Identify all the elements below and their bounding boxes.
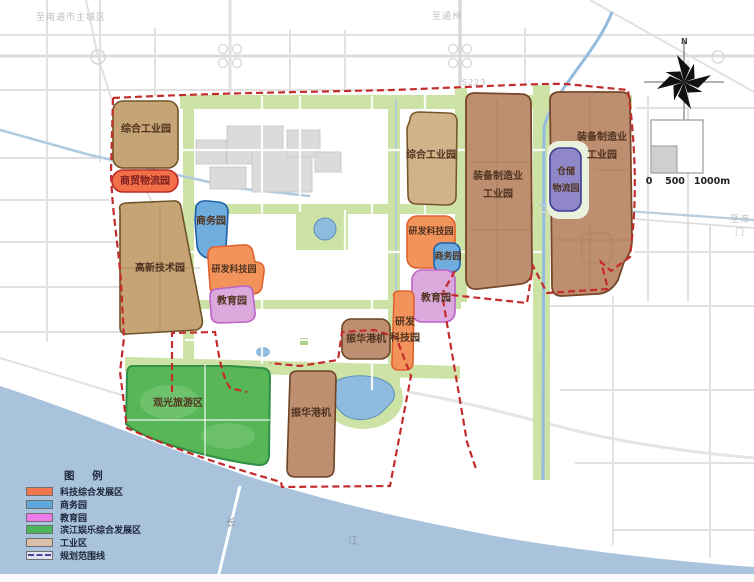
legend-row: 工业区: [26, 538, 196, 548]
zone-shape-zhenhua-port-north: [342, 319, 390, 359]
legend-label: 工业区: [60, 536, 87, 549]
zone-shape-warehouse-logistics-park: [550, 148, 581, 211]
planning-map: 至南通市主城区 至通州 S223 至海门 长 江 N 0 500 1000m 综…: [0, 0, 754, 582]
legend-row: 教育园: [26, 512, 196, 522]
legend-label: 滨江娱乐综合发展区: [60, 523, 141, 536]
zone-shape-zhenhua-port-south: [287, 371, 336, 477]
legend-title: 图 例: [64, 468, 196, 483]
legend-row: 滨江娱乐综合发展区: [26, 525, 196, 535]
legend-row: 科技综合发展区: [26, 487, 196, 497]
zone-shape-comprehensive-industrial-nw: [113, 101, 178, 168]
legend-swatch-recreation: [26, 525, 53, 534]
boundary-dash-icon: [28, 554, 51, 556]
zone-shape-equipment-manufacturing-west: [466, 93, 532, 289]
zone-shape-rd-science-park-south: [392, 291, 414, 370]
scale-bar: [651, 120, 703, 173]
legend-row: 规划范围线: [26, 550, 196, 560]
zone-shape-comprehensive-industrial-mid: [407, 112, 457, 205]
central-lake: [314, 218, 336, 240]
zone-shape-business-park-east: [434, 243, 460, 272]
legend-label: 规划范围线: [60, 549, 105, 562]
legend-swatch-education: [26, 513, 53, 522]
zone-shape-trade-logistics-park: [112, 170, 178, 192]
legend-label: 科技综合发展区: [60, 485, 123, 498]
legend-swatch-industrial: [26, 538, 53, 547]
legend-swatch-business: [26, 500, 53, 509]
zone-shape-education-park-west: [210, 286, 255, 323]
zone-shape-education-park-east: [412, 270, 455, 322]
tourism-inner-green: [201, 423, 255, 449]
tourism-inner-green: [140, 385, 200, 419]
legend-swatch-tech: [26, 487, 53, 496]
legend: 图 例 科技综合发展区 商务园 教育园 滨江娱乐综合发展区 工业区 规划范围线: [26, 468, 196, 563]
legend-label: 商务园: [60, 498, 87, 511]
legend-row: 商务园: [26, 500, 196, 510]
map-frame-strip: [0, 574, 754, 582]
legend-swatch-boundary-line: [26, 551, 53, 560]
legend-label: 教育园: [60, 511, 87, 524]
